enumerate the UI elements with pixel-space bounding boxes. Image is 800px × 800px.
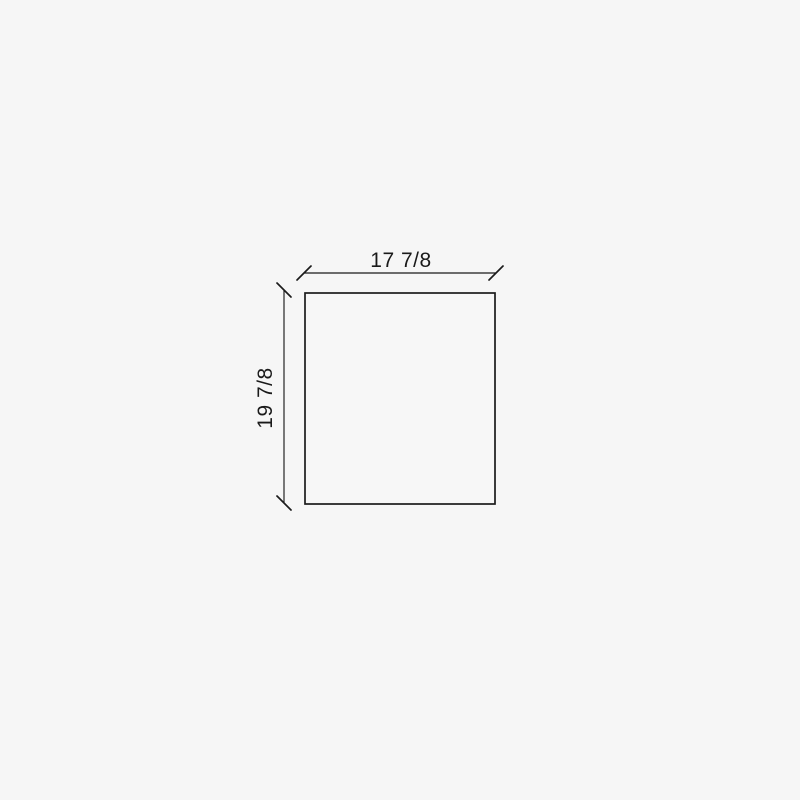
height-dimension-label: 19 7/8: [254, 367, 277, 428]
width-dimension-label: 17 7/8: [370, 249, 431, 272]
product-outline-rectangle: [305, 293, 495, 504]
dimension-diagram: 17 7/8 19 7/8: [0, 0, 800, 800]
height-dimension: 19 7/8: [254, 283, 291, 510]
width-dimension: 17 7/8: [297, 249, 503, 280]
dimension-drawing-svg: 17 7/8 19 7/8: [0, 0, 800, 800]
